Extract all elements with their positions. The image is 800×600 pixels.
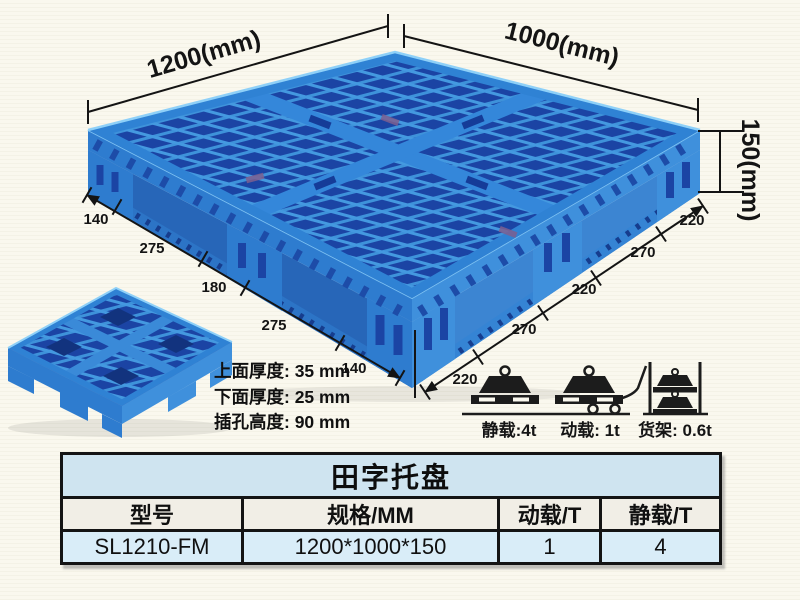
dim-right-3: 220	[571, 281, 596, 298]
header-spec: 规格/MM	[244, 499, 500, 529]
dimension-150: 150(mm)	[698, 119, 764, 222]
header-model: 型号	[63, 499, 244, 529]
cell-static-load: 4	[602, 532, 719, 562]
dim-label-length: 1200(mm)	[144, 25, 264, 84]
dim-left-1: 140	[83, 211, 108, 228]
spec-table-header-row: 型号 规格/MM 动载/T 静载/T	[63, 499, 719, 532]
pallet-deck-grid	[88, 52, 700, 298]
cell-model: SL1210-FM	[63, 532, 244, 562]
dim-left-4: 275	[261, 317, 286, 334]
dim-right-4: 270	[630, 244, 655, 261]
dim-right-5: 220	[679, 212, 704, 229]
cell-spec: 1200*1000*150	[244, 532, 500, 562]
note-bottom-thickness: 下面厚度: 25 mm	[214, 387, 350, 407]
page-background: 1200(mm) 1000(mm) 150(mm) 140 275	[0, 0, 800, 600]
dim-right-1: 220	[452, 371, 477, 388]
note-top-thickness: 上面厚度: 35 mm	[214, 361, 350, 381]
dynamic-load-icon	[555, 366, 646, 414]
dim-left-2: 275	[139, 240, 164, 257]
header-static-load: 静载/T	[602, 499, 719, 529]
header-dynamic-load: 动载/T	[500, 499, 602, 529]
thickness-notes: 上面厚度: 35 mm 下面厚度: 25 mm 插孔高度: 90 mm	[214, 361, 350, 432]
dynamic-load-label: 动载: 1t	[560, 420, 620, 440]
dim-right-2: 270	[511, 321, 536, 338]
note-slot-height: 插孔高度: 90 mm	[214, 412, 350, 432]
spec-table-title: 田字托盘	[63, 455, 719, 499]
rack-load-label: 货架: 0.6t	[638, 420, 712, 440]
static-load-label: 静载:4t	[482, 420, 537, 440]
load-icons: 静载:4t 动载: 1t 货架: 0.6t	[462, 362, 712, 440]
static-load-icon	[471, 367, 539, 405]
spec-table-data-row: SL1210-FM 1200*1000*150 1 4	[63, 532, 719, 562]
pallet-illustration: 1200(mm) 1000(mm) 150(mm) 140 275	[0, 0, 800, 452]
inset-pallet	[8, 288, 232, 438]
spec-table: 田字托盘 型号 规格/MM 动载/T 静载/T SL1210-FM 1200*1…	[60, 452, 722, 565]
dim-left-3: 180	[201, 279, 226, 296]
cell-dynamic-load: 1	[500, 532, 602, 562]
dim-label-height: 150(mm)	[736, 119, 764, 222]
dim-label-width: 1000(mm)	[502, 17, 622, 72]
rack-load-icon	[650, 362, 700, 415]
